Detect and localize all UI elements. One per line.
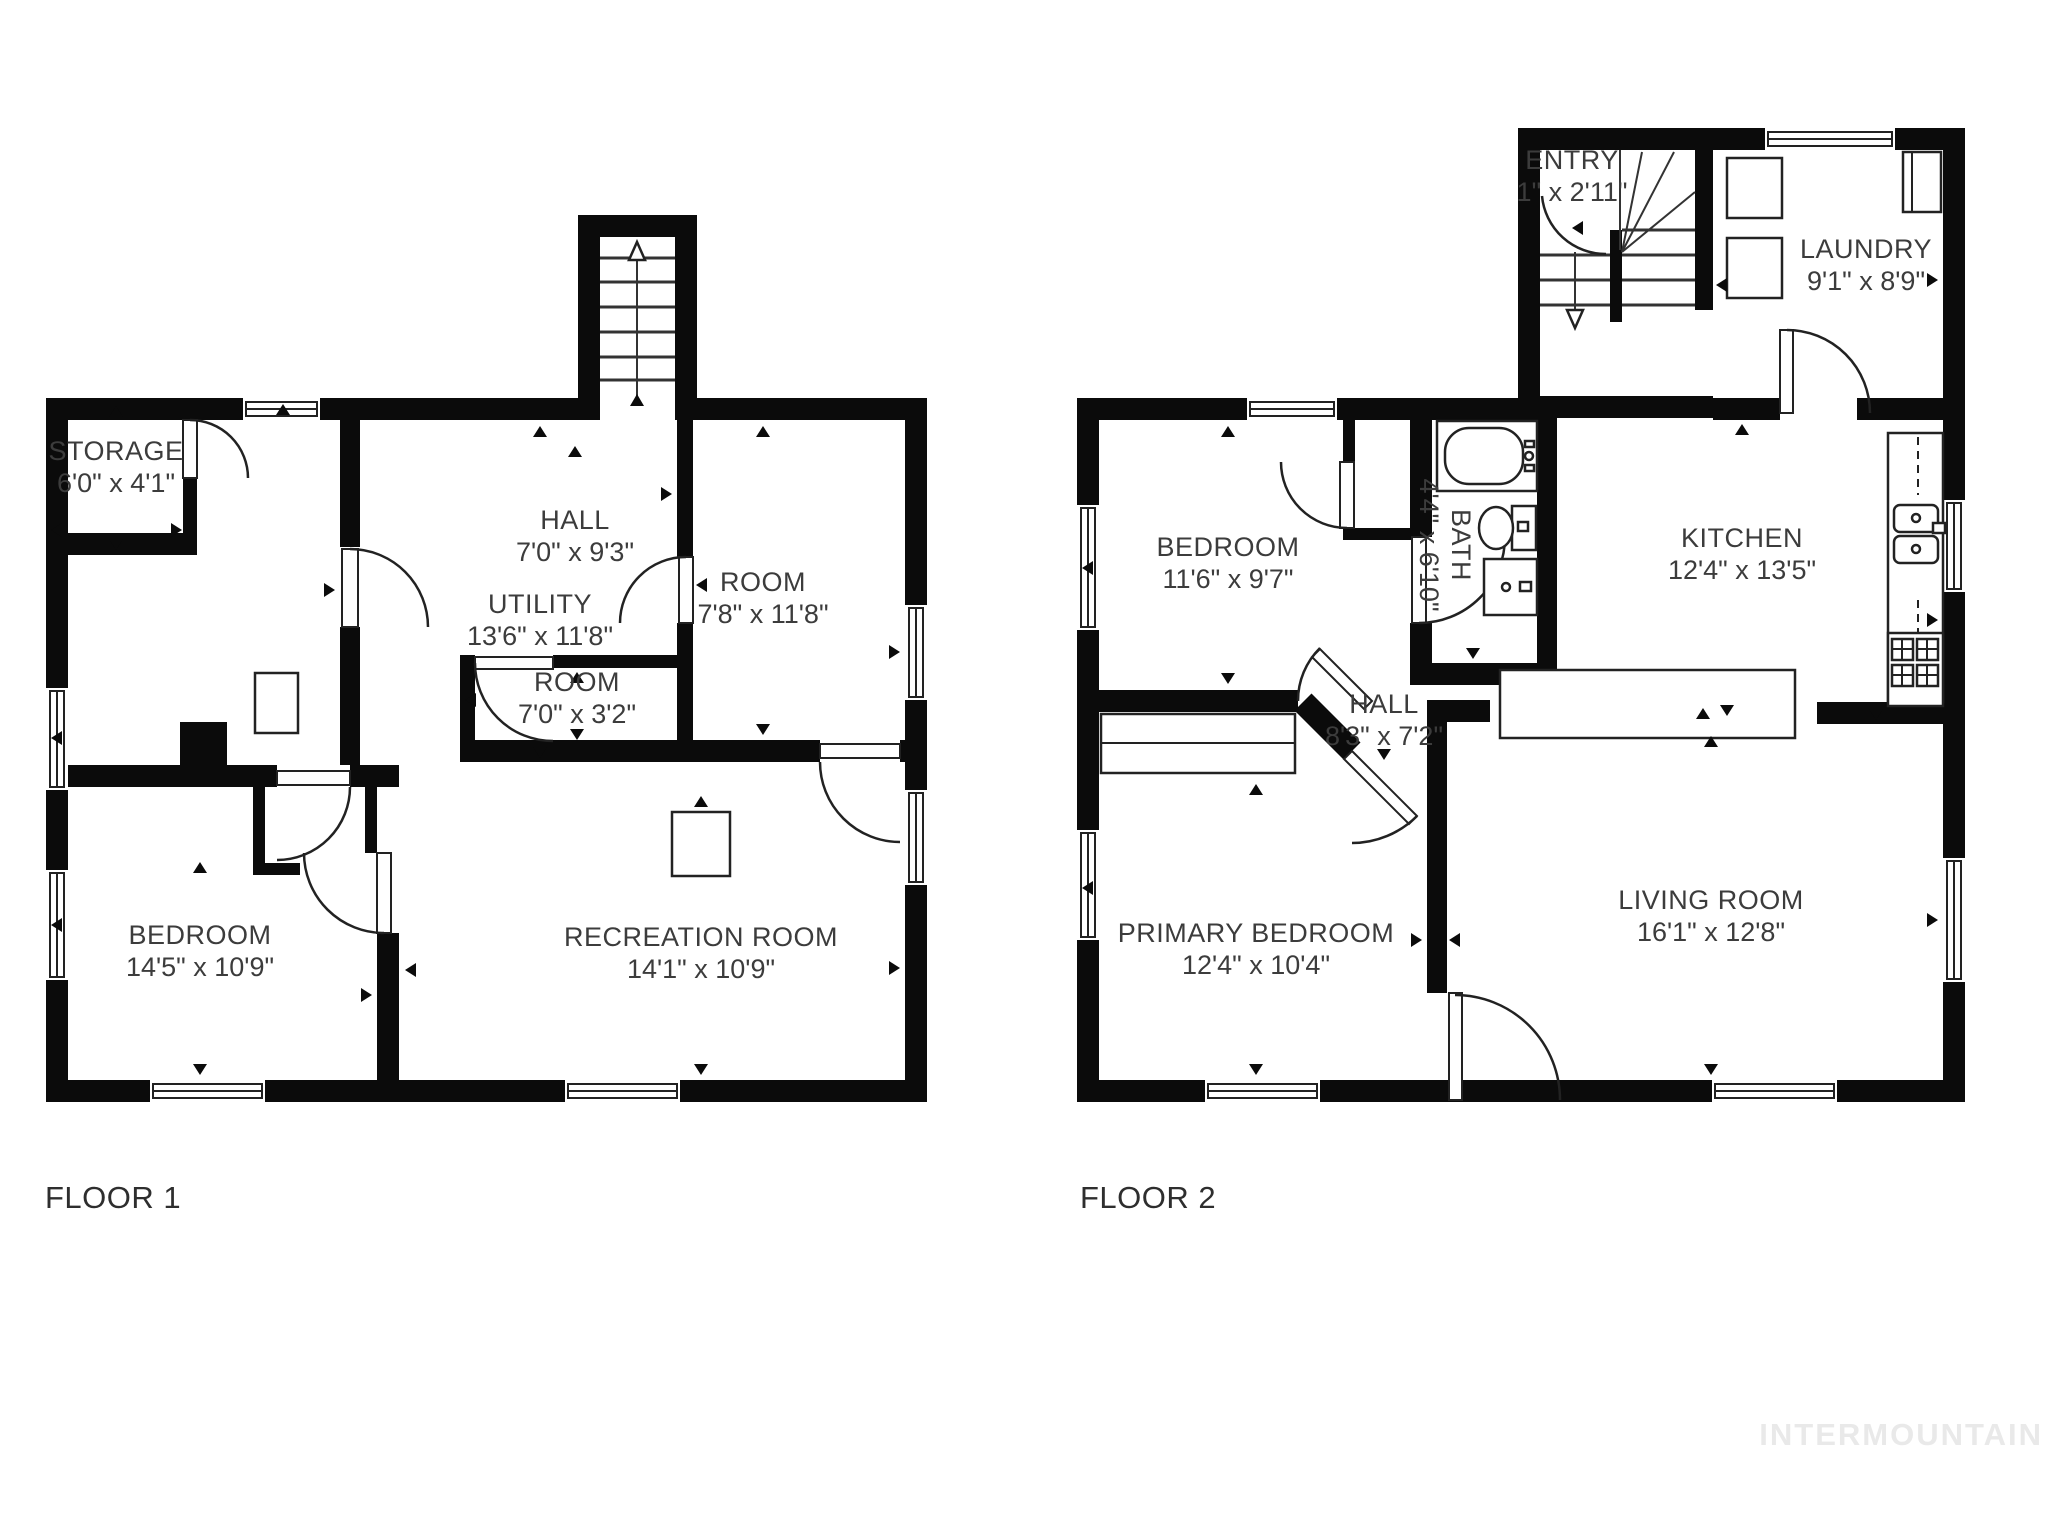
window xyxy=(150,1080,265,1102)
closet xyxy=(1101,714,1295,773)
window xyxy=(1712,1080,1837,1102)
room-label-bath: BATH4'4" x 6'10" xyxy=(1413,478,1477,611)
window xyxy=(565,1080,680,1102)
room-label-kitchen: KITCHEN12'4" x 13'5" xyxy=(1668,522,1816,586)
floor2-caption: FLOOR 2 xyxy=(1080,1180,1216,1216)
island-counter xyxy=(1500,670,1795,738)
room-label-living: LIVING ROOM16'1" x 12'8" xyxy=(1618,884,1804,948)
window xyxy=(1943,858,1965,982)
cabinet-icon xyxy=(1903,152,1941,212)
stove-icon xyxy=(1888,633,1943,706)
room-label-utility: UTILITY13'6" x 11'8" xyxy=(467,588,613,652)
bath-sink-icon xyxy=(1484,559,1537,615)
door-swing xyxy=(1281,462,1354,528)
window xyxy=(1247,398,1337,420)
door-swing xyxy=(277,771,350,860)
room-label-bedroom-f1: BEDROOM14'5" x 10'9" xyxy=(126,919,274,983)
washer-icon xyxy=(1727,158,1782,218)
toilet-icon xyxy=(1479,506,1536,550)
chimney xyxy=(180,722,227,768)
window xyxy=(1943,500,1965,592)
window xyxy=(905,605,927,700)
room-label-storage: STORAGE6'0" x 4'1" xyxy=(48,435,183,499)
floor-furnace-icon xyxy=(672,812,730,876)
door-swing xyxy=(820,744,900,842)
door-swing xyxy=(1344,751,1417,843)
room-label-room-small: ROOM7'0" x 3'2" xyxy=(518,666,636,730)
room-label-room: ROOM7'8" x 11'8" xyxy=(697,566,828,630)
room-label-primary: PRIMARY BEDROOM12'4" x 10'4" xyxy=(1118,917,1395,981)
room-label-hall-f2: HALL8'3" x 7'2" xyxy=(1325,688,1443,752)
window xyxy=(1765,128,1895,150)
room-label-hall-f1: HALL7'0" x 9'3" xyxy=(516,504,634,568)
window xyxy=(1205,1080,1320,1102)
door-swing xyxy=(1780,330,1870,413)
window xyxy=(905,790,927,885)
water-heater-icon xyxy=(255,673,298,733)
floorplan-page: { "watermark": { "text": "INTERMOUNTAIN"… xyxy=(0,0,2048,1536)
stairs-down-arrow-icon xyxy=(1567,310,1583,328)
dryer-icon xyxy=(1727,238,1782,298)
room-label-recreation: RECREATION ROOM14'1" x 10'9" xyxy=(564,921,838,985)
room-label-bedroom-f2: BEDROOM11'6" x 9'7" xyxy=(1156,531,1299,595)
stairs-up-arrow-icon xyxy=(629,242,645,260)
room-label-laundry: LAUNDRY9'1" x 8'9" xyxy=(1800,233,1932,297)
watermark: INTERMOUNTAIN xyxy=(1759,1417,2043,1453)
door-swing xyxy=(342,549,428,627)
door-swing xyxy=(304,853,391,933)
floorplan-canvas xyxy=(0,0,2048,1536)
door-swing xyxy=(183,420,248,478)
floor1-caption: FLOOR 1 xyxy=(45,1180,181,1216)
floor1-stairs-icon xyxy=(600,242,675,406)
room-label-entry: ENTRY1" x 2'11" xyxy=(1517,144,1628,208)
